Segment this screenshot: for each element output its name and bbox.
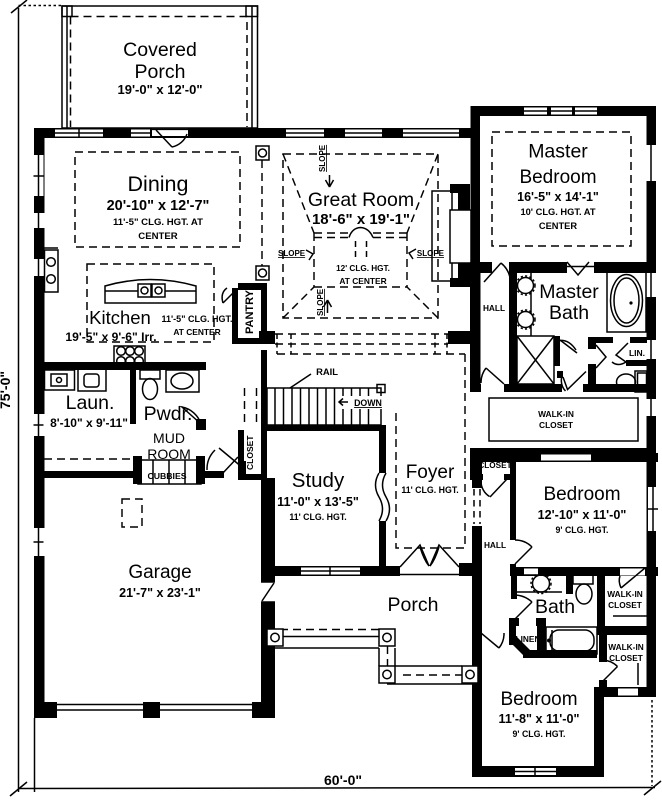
svg-text:11'-8" x 11'-0": 11'-8" x 11'-0"	[499, 712, 580, 726]
svg-text:WALK-IN: WALK-IN	[607, 589, 643, 599]
svg-text:CUBBIES: CUBBIES	[147, 471, 186, 481]
svg-text:WALK-IN: WALK-IN	[608, 642, 644, 652]
svg-text:11'-5" CLG. HGT.: 11'-5" CLG. HGT.	[162, 314, 233, 324]
svg-text:Bedroom: Bedroom	[519, 167, 596, 188]
svg-text:11' CLG. HGT.: 11' CLG. HGT.	[289, 512, 346, 522]
svg-text:SLOPE: SLOPE	[278, 249, 306, 258]
svg-text:8'-10" x 9'-11": 8'-10" x 9'-11"	[50, 416, 128, 430]
svg-text:20'-10" x 12'-7": 20'-10" x 12'-7"	[107, 198, 210, 214]
svg-text:Master: Master	[528, 141, 588, 163]
svg-text:75'-0": 75'-0"	[0, 371, 13, 409]
svg-text:Dining: Dining	[128, 172, 189, 196]
svg-text:Foyer: Foyer	[406, 462, 455, 483]
svg-text:SLOPE: SLOPE	[316, 288, 325, 316]
svg-text:Master: Master	[539, 281, 599, 303]
svg-text:Bedroom: Bedroom	[500, 689, 577, 710]
svg-text:CLOSET: CLOSET	[608, 600, 642, 610]
svg-text:HALL: HALL	[484, 540, 506, 550]
svg-text:PANTRY: PANTRY	[244, 289, 256, 334]
svg-text:AT CENTER: AT CENTER	[339, 276, 386, 286]
svg-text:12' CLG. HGT.: 12' CLG. HGT.	[336, 264, 390, 273]
svg-text:AT CENTER: AT CENTER	[173, 327, 220, 337]
svg-text:Bedroom: Bedroom	[543, 484, 620, 505]
svg-text:CLOSET: CLOSET	[539, 420, 574, 430]
svg-text:Bath: Bath	[549, 302, 589, 324]
svg-text:11'-0" x 13'-5": 11'-0" x 13'-5"	[277, 495, 359, 509]
svg-text:Study: Study	[292, 469, 345, 492]
svg-text:WALK-IN: WALK-IN	[538, 409, 574, 419]
svg-text:CENTER: CENTER	[539, 221, 578, 231]
svg-text:Garage: Garage	[128, 562, 191, 583]
svg-text:11' CLG. HGT.: 11' CLG. HGT.	[401, 485, 458, 495]
svg-text:MUD: MUD	[153, 430, 185, 446]
svg-text:CENTER: CENTER	[138, 231, 178, 242]
svg-text:18'-6" x 19'-1": 18'-6" x 19'-1"	[312, 211, 410, 228]
svg-text:9' CLG. HGT.: 9' CLG. HGT.	[513, 729, 566, 739]
svg-text:Laun.: Laun.	[66, 392, 115, 414]
svg-text:CLOSET: CLOSET	[609, 653, 643, 663]
svg-text:Bath: Bath	[535, 596, 575, 618]
svg-text:11'-5" CLG. HGT. AT: 11'-5" CLG. HGT. AT	[113, 217, 203, 228]
svg-text:HALL: HALL	[483, 303, 505, 313]
svg-text:CLOSET: CLOSET	[245, 435, 255, 470]
svg-text:9' CLG. HGT.: 9' CLG. HGT.	[556, 525, 609, 535]
svg-text:Porch: Porch	[388, 594, 439, 616]
svg-text:CLOSET: CLOSET	[478, 461, 511, 470]
svg-text:Pwdr.: Pwdr.	[144, 403, 193, 425]
svg-text:16'-5" x 14'-1": 16'-5" x 14'-1"	[517, 190, 599, 204]
svg-text:Great Room: Great Room	[308, 189, 414, 211]
svg-text:Kitchen: Kitchen	[89, 307, 151, 328]
svg-text:LIN.: LIN.	[629, 348, 645, 358]
svg-text:DOWN: DOWN	[354, 398, 382, 408]
svg-text:SLOPE: SLOPE	[417, 249, 445, 258]
svg-text:Porch: Porch	[135, 61, 186, 83]
svg-text:Covered: Covered	[123, 39, 197, 61]
svg-text:21'-7" x 23'-1": 21'-7" x 23'-1"	[119, 586, 201, 600]
svg-text:RAIL: RAIL	[316, 366, 338, 377]
svg-text:12'-10" x 11'-0": 12'-10" x 11'-0"	[538, 508, 627, 522]
svg-text:60'-0": 60'-0"	[324, 772, 362, 788]
svg-text:19'-0" x 12'-0": 19'-0" x 12'-0"	[117, 82, 202, 97]
svg-text:19'-5" x 9'-6" Irr.: 19'-5" x 9'-6" Irr.	[65, 330, 156, 344]
svg-text:SLOPE: SLOPE	[318, 144, 327, 172]
svg-text:10' CLG. HGT. AT: 10' CLG. HGT. AT	[520, 207, 595, 217]
